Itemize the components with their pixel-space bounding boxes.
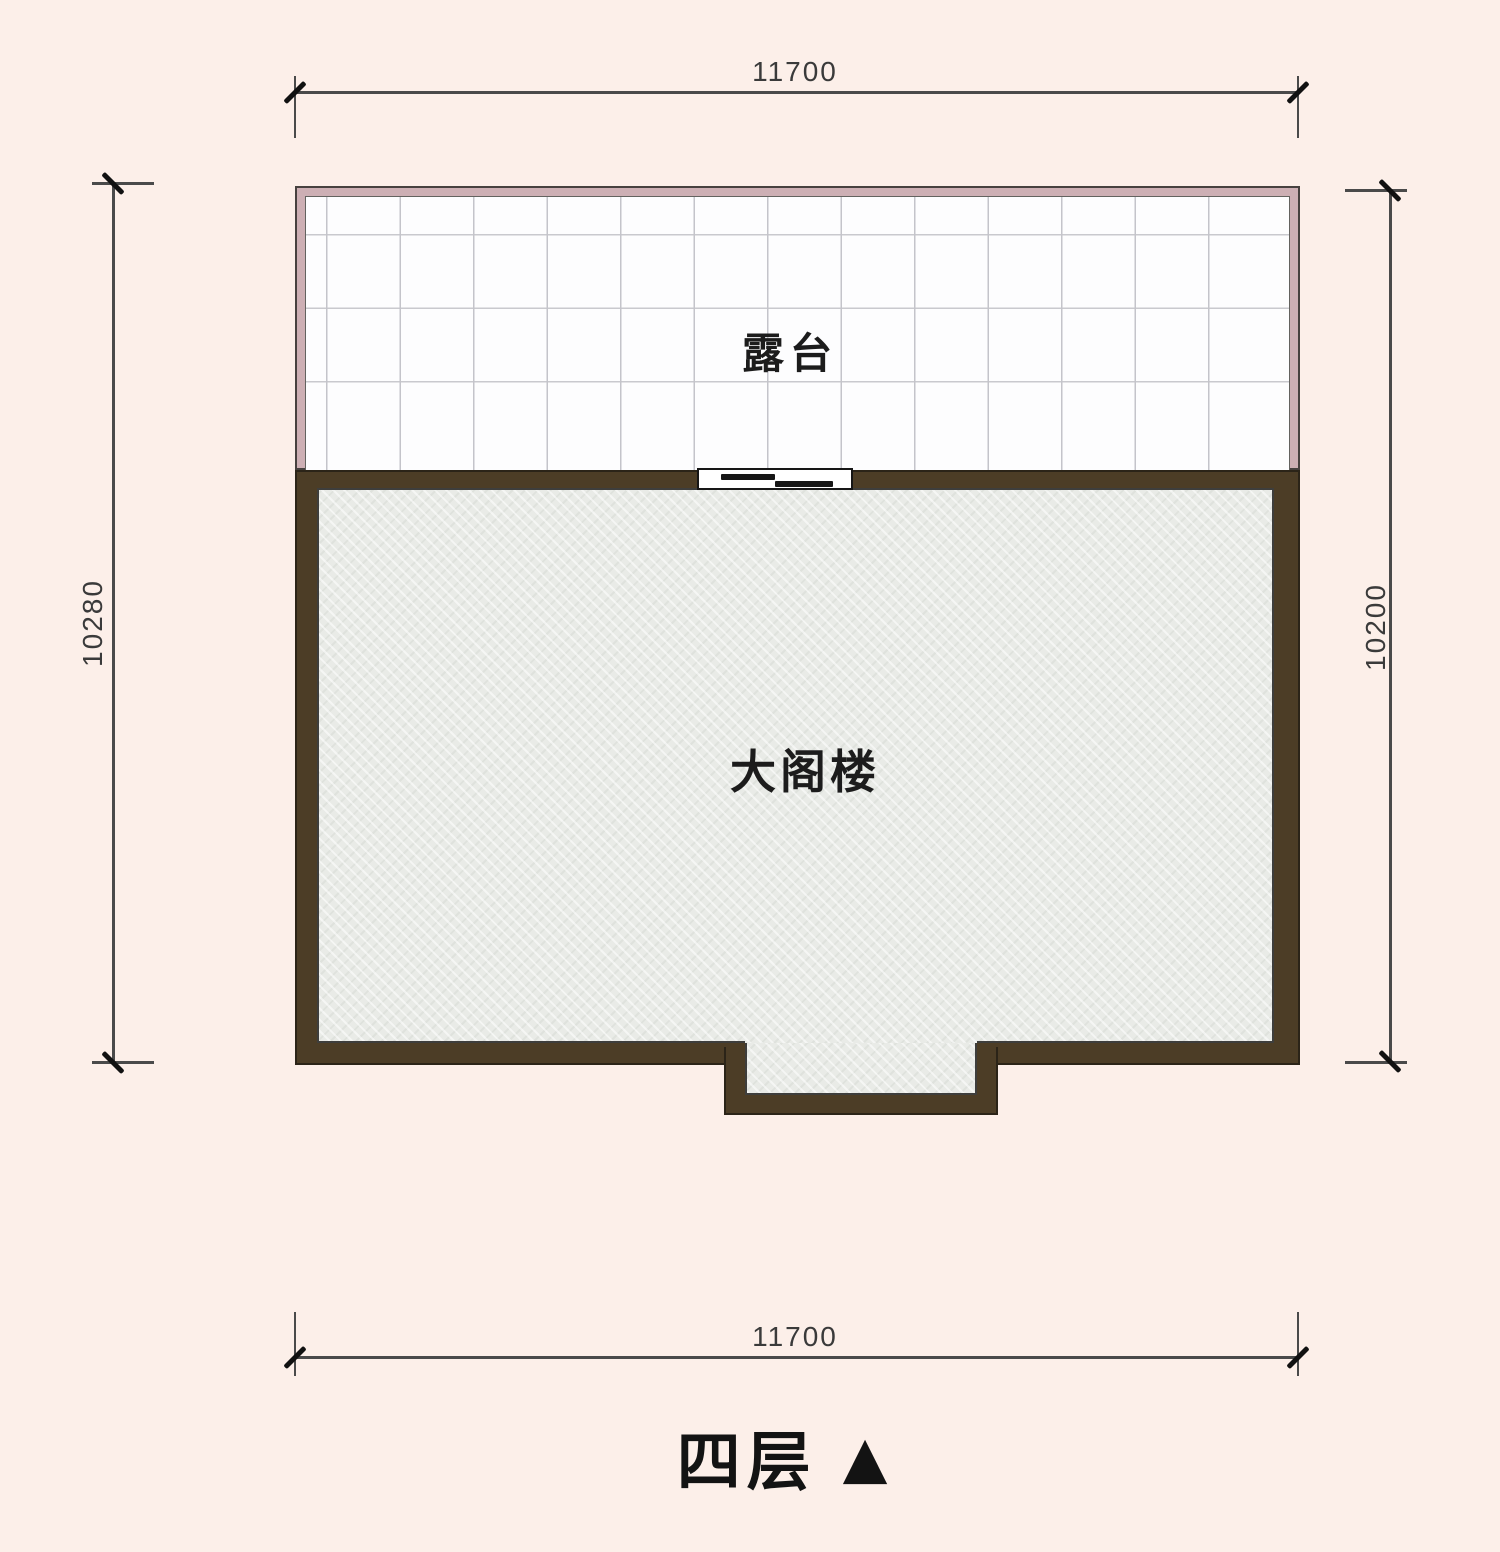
floor-title-text: 四层: [677, 1411, 817, 1503]
dimension-top-line: [295, 91, 1298, 94]
dimension-right-ext-top: [1345, 189, 1407, 192]
floor-plan-canvas: 11700 11700 10280 10200 露台 大阁楼 四层 ▲: [0, 0, 1500, 1552]
terrace-label: 露台: [690, 331, 890, 377]
dimension-right-label: 10200: [1361, 527, 1391, 727]
attic-floor-bump: [745, 1043, 977, 1095]
attic-floor-bottom-edge-right: [977, 1041, 1274, 1043]
dimension-top-ext-right: [1297, 76, 1299, 138]
dimension-left-label: 10280: [78, 523, 108, 723]
attic-floor-bottom-edge-left: [317, 1041, 745, 1043]
dimension-bottom-line: [295, 1356, 1298, 1359]
dimension-bottom-label: 11700: [695, 1322, 895, 1352]
sliding-door-panel: [775, 481, 833, 487]
sliding-door-panel: [721, 474, 775, 480]
dimension-left-ext-bottom: [92, 1061, 154, 1064]
floor-title: 四层 ▲: [532, 1418, 1032, 1496]
north-triangle-icon: ▲: [843, 1428, 888, 1486]
dimension-bottom-ext-left: [294, 1312, 296, 1376]
sliding-door: [697, 468, 853, 490]
dimension-right-ext-bottom: [1345, 1061, 1407, 1064]
dimension-top-ext-left: [294, 76, 296, 138]
dimension-top-label: 11700: [695, 57, 895, 87]
dimension-left-line: [112, 183, 115, 1063]
dimension-left-ext-top: [92, 182, 154, 185]
dimension-bottom-ext-right: [1297, 1312, 1299, 1376]
attic-label: 大阁楼: [655, 746, 955, 798]
